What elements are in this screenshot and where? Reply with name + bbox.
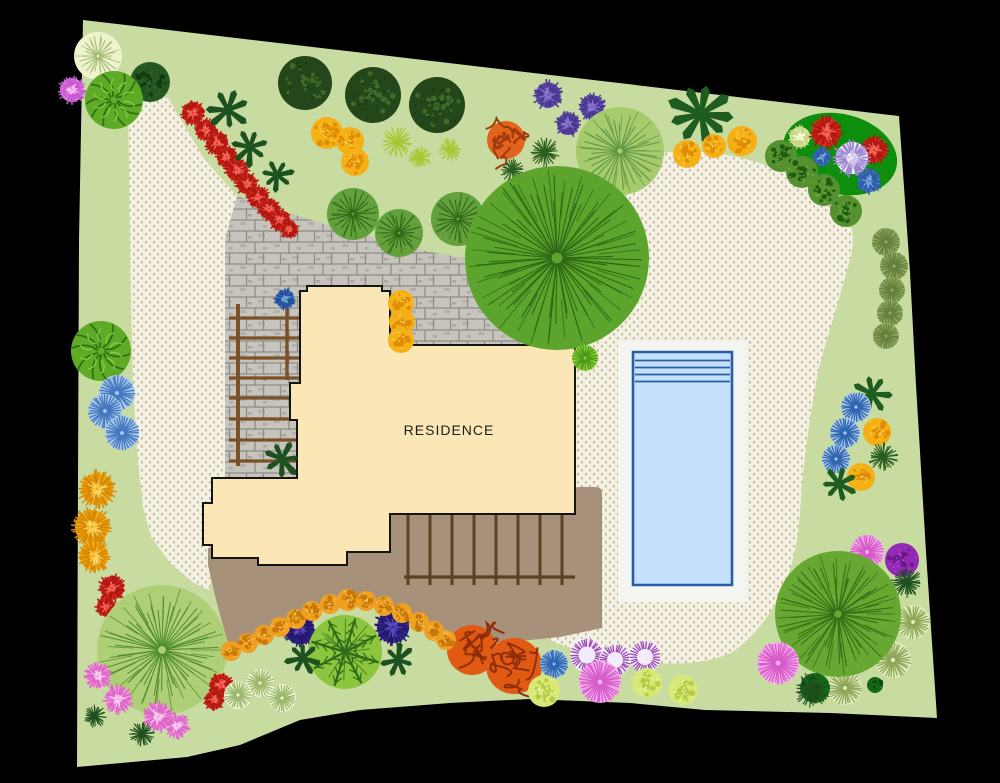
gold-flower-shrub xyxy=(702,134,726,158)
pink-flower-shrub xyxy=(757,642,799,684)
plan-canvas xyxy=(0,0,1000,783)
gold-flower-shrub xyxy=(341,148,369,176)
evergreen-tree xyxy=(345,67,401,123)
gold-border-flower xyxy=(337,589,359,611)
mottled-shrub xyxy=(830,195,862,227)
chartreuse-shrub xyxy=(668,675,698,705)
leafy-shrub xyxy=(71,321,131,381)
sage-shrub xyxy=(872,228,900,256)
gold-flower-shrub xyxy=(673,140,701,168)
cream-shrub xyxy=(268,684,296,712)
green-tree xyxy=(375,209,423,257)
blue-pinwheel-shrub xyxy=(822,445,850,473)
sage-shrub xyxy=(877,300,903,326)
sage-shrub xyxy=(880,252,908,280)
pink-flower-shrub xyxy=(579,661,621,703)
hosta-shrub xyxy=(308,615,382,689)
gold-border-flower xyxy=(374,596,394,616)
pool xyxy=(633,352,732,585)
evergreen-tree xyxy=(278,56,332,110)
gold-flower-shrub xyxy=(727,126,757,156)
large-canopy-tree xyxy=(465,166,649,350)
cream-shrub xyxy=(224,681,252,709)
chartreuse-shrub xyxy=(632,668,662,698)
residence-label: RESIDENCE xyxy=(404,422,495,438)
evergreen-tree xyxy=(409,77,465,133)
small-green-shrub xyxy=(572,345,598,371)
gold-border-flower xyxy=(356,591,376,611)
gold-border-flower xyxy=(436,630,456,650)
pale-green-shrub xyxy=(896,605,930,639)
leafy-shrub xyxy=(85,71,143,129)
gold-border-flower xyxy=(320,594,340,614)
gold-border-flower xyxy=(392,603,412,623)
gold-flower-shrub xyxy=(863,418,891,446)
green-tree xyxy=(327,188,379,240)
blue-pinwheel-shrub xyxy=(841,392,871,422)
chartreuse-shrub xyxy=(528,675,560,707)
gold-flower-shrub xyxy=(388,327,414,353)
blue-pinwheel-shrub xyxy=(540,650,568,678)
gold-border-flower xyxy=(221,641,241,661)
gold-border-flower xyxy=(302,601,322,621)
blue-pinwheel-shrub xyxy=(830,418,860,448)
sage-shrub xyxy=(873,323,899,349)
sage-shrub xyxy=(879,277,905,303)
landscape-plan: RESIDENCE xyxy=(0,0,1000,783)
